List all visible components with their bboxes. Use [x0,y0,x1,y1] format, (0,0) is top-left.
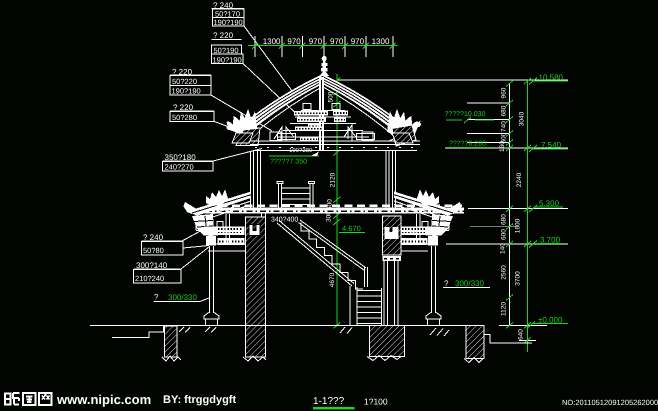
svg-text:600: 600 [501,229,508,240]
svg-text:10.580: 10.580 [539,73,564,82]
svg-text:1?100: 1?100 [364,397,388,407]
svg-text:1300: 1300 [372,37,390,46]
svg-text:340?400: 340?400 [271,217,298,224]
svg-text:3700: 3700 [515,271,522,286]
svg-text:?: ? [154,293,159,302]
svg-text:?????8.280: ?????8.280 [449,141,486,148]
svg-text:4670: 4670 [329,272,336,287]
svg-text:640: 640 [518,329,525,340]
svg-text:?: ? [444,279,449,288]
svg-text:190?280: 190?280 [289,147,313,154]
svg-text:7.540: 7.540 [541,141,562,150]
svg-text:?????10.030: ?????10.030 [445,111,486,118]
svg-text:190?190: 190?190 [214,18,243,27]
svg-text:?????7.350: ?????7.350 [270,159,307,166]
svg-text:970: 970 [309,37,323,46]
svg-text:300/330: 300/330 [455,279,484,288]
svg-text:1300: 1300 [263,37,281,46]
svg-text:140: 140 [500,243,507,254]
svg-text:960: 960 [501,87,508,98]
svg-text:210?240: 210?240 [135,274,164,283]
svg-text:50?220: 50?220 [172,77,197,86]
svg-text:? 220: ? 220 [213,31,234,40]
svg-text:4.670: 4.670 [342,224,361,233]
svg-text:1-1???: 1-1??? [313,396,345,407]
svg-text:NO:20110512091205262000: NO:20110512091205262000 [562,398,658,407]
svg-text:www.nipic.com: www.nipic.com [56,392,151,407]
svg-text:970: 970 [351,37,365,46]
svg-text:1120: 1120 [501,302,508,316]
svg-text:2240: 2240 [516,172,523,187]
svg-text:2560: 2560 [501,265,508,280]
svg-text:160: 160 [499,141,506,152]
svg-text:BY: ftrggdygft: BY: ftrggdygft [163,394,236,406]
svg-text:970: 970 [287,37,301,46]
svg-text:190?190: 190?190 [213,56,242,65]
svg-text:3040: 3040 [519,111,526,126]
svg-text:2120: 2120 [330,172,337,187]
svg-text:300/330: 300/330 [168,293,197,302]
svg-text:190?190: 190?190 [172,87,201,96]
svg-text:970: 970 [330,37,344,46]
svg-text:50?80: 50?80 [143,246,164,255]
svg-text:240?270: 240?270 [165,162,194,171]
svg-text:680: 680 [501,214,508,225]
svg-text:680: 680 [501,105,508,116]
svg-text:1600: 1600 [515,218,522,233]
svg-text:50?280: 50?280 [172,113,197,122]
svg-text:740: 740 [501,121,508,132]
